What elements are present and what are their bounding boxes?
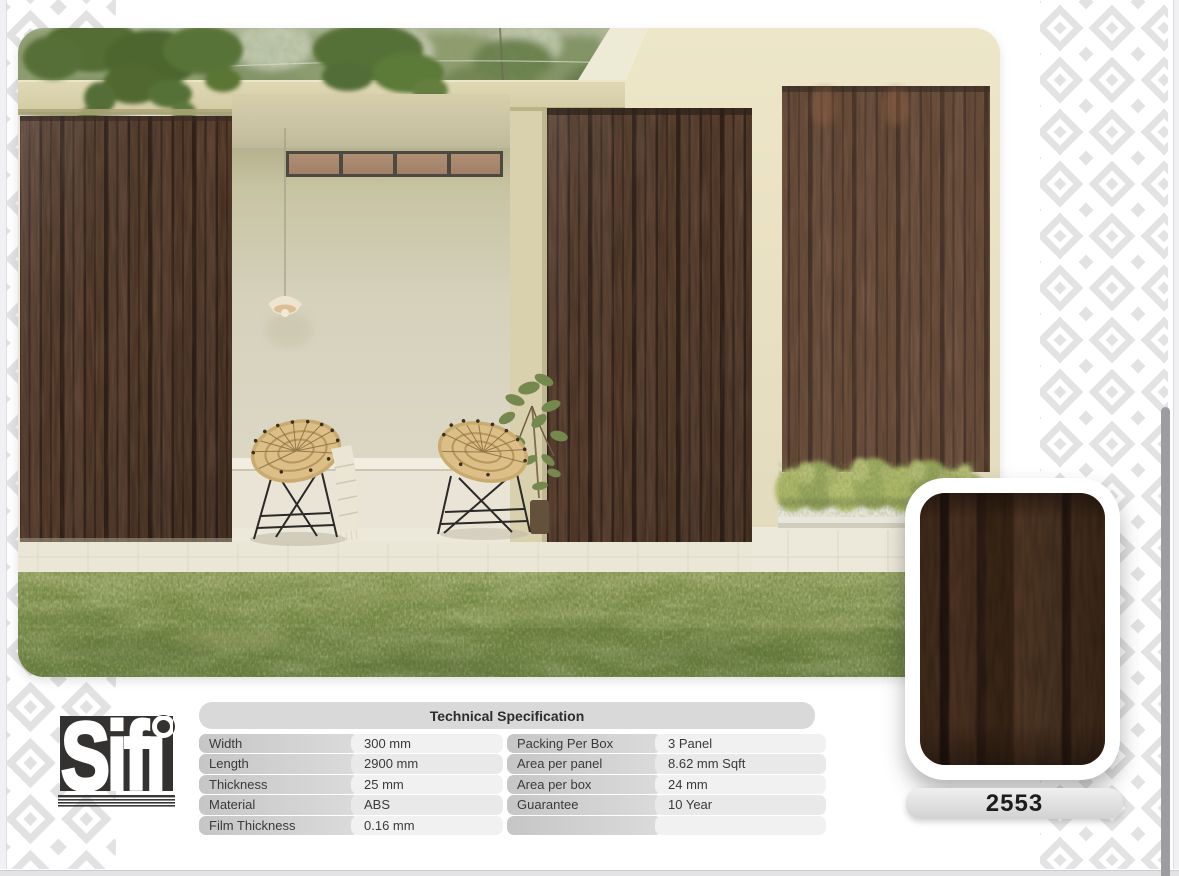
svg-text:Sifı: Sifı [61, 712, 166, 808]
